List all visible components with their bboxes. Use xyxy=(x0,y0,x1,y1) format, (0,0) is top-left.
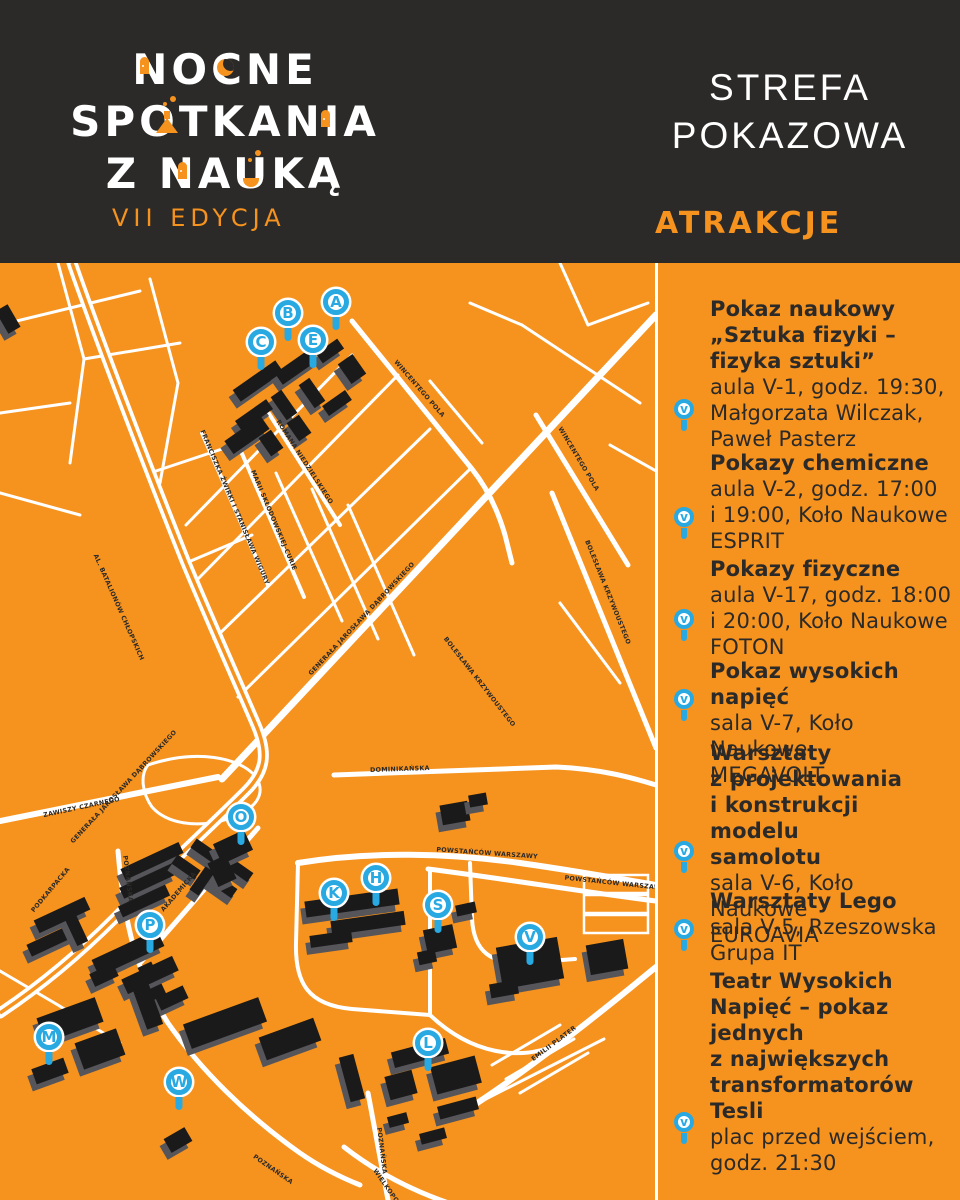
attraction-title: Pokaz naukowy „Sztuka fizyki – fizyka sz… xyxy=(710,296,952,374)
attraction-title: Teatr Wysokich Napięć – pokaz jednych z … xyxy=(710,968,952,1124)
attraction-item: v Pokazy chemiczne aula V-2, godz. 17:00… xyxy=(658,450,960,554)
zone-title: STREFA POKAZOWA xyxy=(640,64,940,160)
logo-bubble-icon xyxy=(163,102,167,106)
attractions-heading: ATRAKCJE xyxy=(655,206,842,241)
attractions-panel: v Pokaz naukowy „Sztuka fizyki – fizyka … xyxy=(658,263,960,1200)
logo-flask-icon xyxy=(156,118,178,133)
attraction-details: aula V-17, godz. 18:00 i 20:00, Koło Nau… xyxy=(710,582,952,660)
attraction-title: Warsztaty Lego xyxy=(710,888,952,914)
edition-label: VII EDYCJA xyxy=(70,204,380,232)
map-marker-k[interactable]: K xyxy=(321,880,347,906)
location-pin-icon: v xyxy=(674,689,694,709)
logo-line-3: Z NAUKĄ xyxy=(70,148,380,200)
attraction-item: v Teatr Wysokich Napięć – pokaz jednych … xyxy=(658,968,960,1176)
map-graphics: AL. BATALIONÓW CHŁOPSKICH GENERAŁA JAROS… xyxy=(0,263,656,1200)
attraction-item: v Warsztaty Lego sala V-5, Rzeszowska Gr… xyxy=(658,888,960,966)
location-pin-icon: v xyxy=(674,919,694,939)
logo-bubble-icon xyxy=(248,158,252,162)
logo-bubble-icon xyxy=(255,150,261,156)
logo-line-1: NOCNE xyxy=(70,44,380,96)
location-pin-icon: v xyxy=(674,609,694,629)
location-pin-icon: v xyxy=(674,1112,694,1132)
map-marker-p[interactable]: P xyxy=(137,912,163,938)
attraction-item: v Pokaz naukowy „Sztuka fizyki – fizyka … xyxy=(658,296,960,452)
svg-text:POZNAŃSKA: POZNAŃSKA xyxy=(252,1152,296,1186)
map-marker-c[interactable]: C xyxy=(248,329,274,355)
logo-door-icon xyxy=(178,162,187,179)
map-marker-s[interactable]: S xyxy=(425,892,451,918)
map-marker-o[interactable]: O xyxy=(228,804,254,830)
attraction-details: sala V-5, Rzeszowska Grupa IT xyxy=(710,914,952,966)
zone-title-line-2: POKAZOWA xyxy=(640,112,940,160)
header: NOCNE SPOTKANIA Z NAUKĄ VII EDYCJA STREF… xyxy=(0,0,960,263)
logo-door-icon xyxy=(321,110,330,127)
attraction-details: plac przed wejściem, godz. 21:30 xyxy=(710,1124,952,1176)
attraction-title: Pokazy chemiczne xyxy=(710,450,952,476)
map-marker-a[interactable]: A xyxy=(323,289,349,315)
map-marker-v[interactable]: V xyxy=(517,924,543,950)
logo-bubble-icon xyxy=(170,96,176,102)
location-pin-icon: v xyxy=(674,399,694,419)
logo-moon-icon xyxy=(217,59,234,76)
logo-door-icon xyxy=(140,57,149,74)
map-marker-b[interactable]: B xyxy=(275,300,301,326)
attraction-item: v Pokazy fizyczne aula V-17, godz. 18:00… xyxy=(658,556,960,660)
attraction-details: aula V-1, godz. 19:30, Małgorzata Wilcza… xyxy=(710,374,952,452)
buildings-layer xyxy=(0,304,628,1160)
zone-title-line-1: STREFA xyxy=(640,64,940,112)
map-marker-l[interactable]: L xyxy=(415,1030,441,1056)
svg-text:AL. BATALIONÓW CHŁOPSKICH: AL. BATALIONÓW CHŁOPSKICH xyxy=(92,552,147,661)
location-pin-icon: v xyxy=(674,841,694,861)
campus-map: AL. BATALIONÓW CHŁOPSKICH GENERAŁA JAROS… xyxy=(0,263,656,1200)
map-marker-e[interactable]: E xyxy=(300,327,326,353)
event-logo: NOCNE SPOTKANIA Z NAUKĄ VII EDYCJA xyxy=(70,44,380,232)
attraction-details: aula V-2, godz. 17:00 i 19:00, Koło Nauk… xyxy=(710,476,952,554)
attraction-title: Warsztaty z projektowania i konstrukcji … xyxy=(710,740,952,870)
svg-text:BOLESŁAWA KRZYWOUSTEGO: BOLESŁAWA KRZYWOUSTEGO xyxy=(442,636,517,729)
map-marker-h[interactable]: H xyxy=(363,865,389,891)
location-pin-icon: v xyxy=(674,507,694,527)
logo-line-2: SPOTKANIA xyxy=(70,96,380,148)
attraction-title: Pokaz wysokich napięć xyxy=(710,658,952,710)
map-marker-w[interactable]: W xyxy=(166,1069,192,1095)
attraction-title: Pokazy fizyczne xyxy=(710,556,952,582)
map-marker-m[interactable]: M xyxy=(36,1024,62,1050)
